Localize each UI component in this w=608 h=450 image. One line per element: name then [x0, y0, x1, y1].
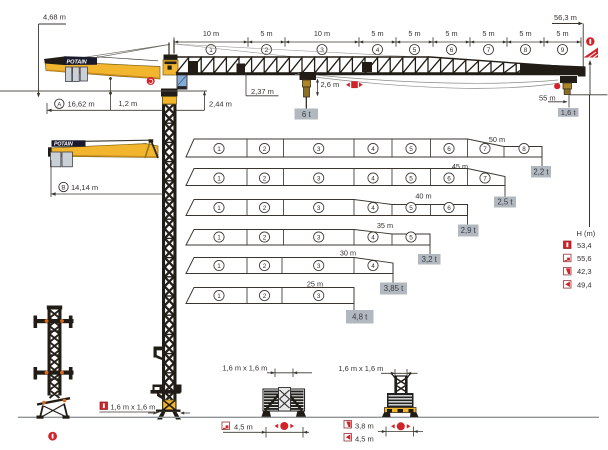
svg-text:5 m: 5 m: [556, 29, 568, 38]
svg-text:7: 7: [483, 146, 487, 153]
svg-text:5: 5: [409, 175, 413, 182]
svg-text:40 m: 40 m: [415, 191, 431, 200]
svg-text:1: 1: [217, 175, 221, 182]
svg-text:9: 9: [561, 47, 565, 54]
svg-text:5 m: 5 m: [519, 29, 531, 38]
svg-text:7: 7: [487, 47, 491, 54]
svg-text:53,4: 53,4: [577, 241, 592, 250]
svg-text:3: 3: [317, 293, 321, 300]
svg-text:2: 2: [263, 234, 267, 241]
svg-text:5 m: 5 m: [445, 29, 457, 38]
svg-text:4: 4: [371, 146, 375, 153]
svg-text:2: 2: [263, 205, 267, 212]
svg-text:1,2 m: 1,2 m: [119, 99, 138, 108]
svg-text:5 m: 5 m: [260, 29, 272, 38]
svg-text:1: 1: [217, 205, 221, 212]
svg-text:4,8 t: 4,8 t: [352, 312, 368, 321]
svg-text:2,5 t: 2,5 t: [497, 198, 513, 207]
svg-text:5 m: 5 m: [482, 29, 494, 38]
svg-text:10 m: 10 m: [203, 29, 219, 38]
svg-text:30 m: 30 m: [340, 249, 356, 258]
svg-text:3: 3: [320, 47, 324, 54]
svg-text:2,44 m: 2,44 m: [209, 99, 232, 108]
svg-text:56,3 m: 56,3 m: [554, 13, 577, 22]
svg-text:4: 4: [376, 47, 380, 54]
svg-text:3,2 t: 3,2 t: [422, 255, 438, 264]
svg-text:7: 7: [483, 175, 487, 182]
svg-text:5: 5: [409, 205, 413, 212]
svg-text:1,6 m x 1,6 m: 1,6 m x 1,6 m: [339, 364, 384, 373]
svg-text:42,3: 42,3: [577, 267, 592, 276]
svg-text:4,5 m: 4,5 m: [234, 422, 253, 431]
svg-text:6: 6: [447, 146, 451, 153]
svg-text:POTAIN: POTAIN: [67, 59, 88, 65]
svg-text:4: 4: [371, 263, 375, 270]
svg-text:5: 5: [413, 47, 417, 54]
svg-text:2: 2: [263, 293, 267, 300]
svg-text:55 m: 55 m: [539, 94, 556, 103]
svg-text:4: 4: [371, 205, 375, 212]
svg-text:1: 1: [217, 146, 221, 153]
svg-text:1,6 m x 1,6 m: 1,6 m x 1,6 m: [223, 363, 268, 372]
svg-text:4,5 m: 4,5 m: [355, 434, 374, 443]
svg-text:10 m: 10 m: [314, 29, 330, 38]
svg-text:4: 4: [371, 234, 375, 241]
svg-text:3,85 t: 3,85 t: [384, 284, 404, 293]
svg-text:POTAIN: POTAIN: [54, 142, 73, 148]
svg-text:4: 4: [371, 175, 375, 182]
svg-text:3: 3: [317, 146, 321, 153]
svg-text:50 m: 50 m: [489, 135, 505, 144]
svg-text:6: 6: [447, 205, 451, 212]
svg-text:14,14 m: 14,14 m: [71, 183, 98, 192]
svg-text:2,6 m: 2,6 m: [321, 80, 340, 89]
svg-text:55,6: 55,6: [577, 254, 592, 263]
svg-text:1: 1: [217, 234, 221, 241]
svg-text:35 m: 35 m: [377, 221, 393, 230]
svg-text:6: 6: [447, 175, 451, 182]
svg-text:H (m): H (m): [577, 229, 596, 238]
svg-text:2: 2: [265, 47, 269, 54]
svg-text:5 m: 5 m: [408, 29, 420, 38]
svg-text:5 m: 5 m: [371, 29, 383, 38]
svg-text:3: 3: [317, 234, 321, 241]
svg-text:49,4: 49,4: [577, 280, 592, 289]
svg-text:5: 5: [409, 146, 413, 153]
svg-text:3: 3: [317, 263, 321, 270]
svg-text:8: 8: [522, 146, 526, 153]
svg-text:1: 1: [217, 263, 221, 270]
svg-text:2,9 t: 2,9 t: [461, 226, 477, 235]
svg-text:25 m: 25 m: [307, 279, 323, 288]
svg-text:1,6 t: 1,6 t: [561, 108, 577, 117]
svg-text:B: B: [61, 185, 65, 192]
svg-text:8: 8: [524, 47, 528, 54]
svg-text:6: 6: [450, 47, 454, 54]
svg-text:2: 2: [263, 263, 267, 270]
svg-text:3,8 m: 3,8 m: [355, 421, 374, 430]
svg-text:2: 2: [263, 146, 267, 153]
svg-text:3: 3: [317, 175, 321, 182]
svg-text:3: 3: [317, 205, 321, 212]
svg-text:1: 1: [217, 293, 221, 300]
svg-text:1,6 m x 1,6 m: 1,6 m x 1,6 m: [111, 402, 156, 411]
svg-text:2: 2: [263, 175, 267, 182]
svg-text:4,68 m: 4,68 m: [43, 13, 66, 22]
svg-text:5: 5: [409, 234, 413, 241]
svg-text:2,2 t: 2,2 t: [533, 167, 549, 176]
svg-text:16,62 m: 16,62 m: [68, 100, 95, 109]
svg-text:2,37 m: 2,37 m: [251, 87, 274, 96]
svg-text:6 t: 6 t: [302, 110, 312, 119]
